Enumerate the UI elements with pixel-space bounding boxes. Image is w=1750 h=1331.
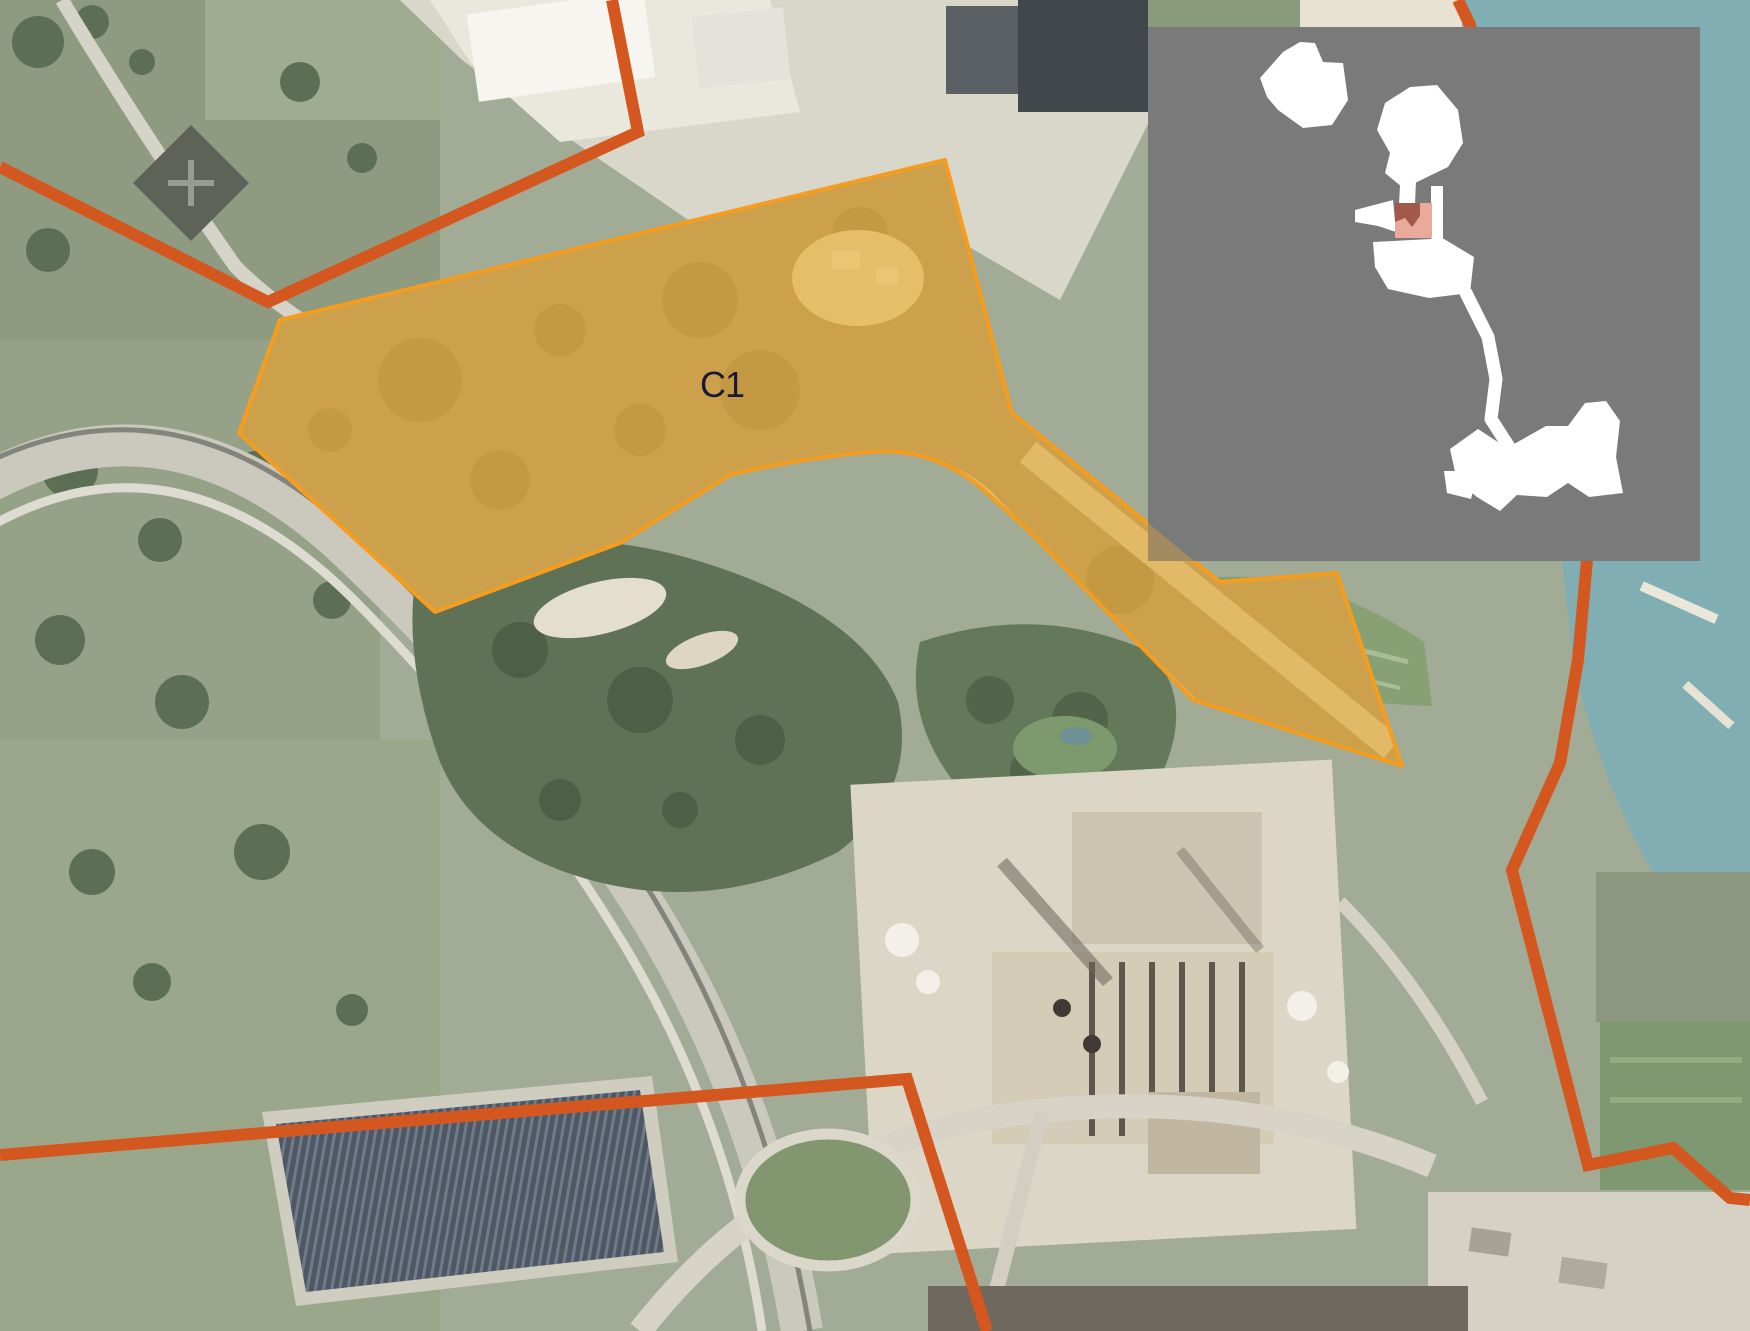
chimney [1083,1035,1101,1053]
power-plant [850,760,1356,1255]
shore-green [1596,872,1750,1022]
warehouse-building [691,7,790,88]
zone-c1-label: C1 [700,364,744,405]
sea-water [1462,0,1750,27]
shore-green [1148,0,1308,27]
sea-water [1700,27,1750,560]
field-patch [205,0,440,120]
satellite-map-view[interactable]: C1 [0,0,1750,1331]
oval-ring-field [740,1134,916,1266]
industrial-strip [928,1286,1468,1331]
inset-land-shape [1431,186,1443,240]
storage-tank [1327,1061,1349,1083]
factory-building-dark [946,6,1018,94]
sports-fields [1600,1022,1750,1190]
storage-tank [916,970,940,994]
beach [1300,0,1462,27]
chimney [1053,999,1071,1017]
storage-tank [885,923,919,957]
storage-tank [1287,991,1317,1021]
inset-overview-map[interactable] [1148,27,1700,561]
pond [1060,727,1092,745]
lawn [1013,716,1117,780]
